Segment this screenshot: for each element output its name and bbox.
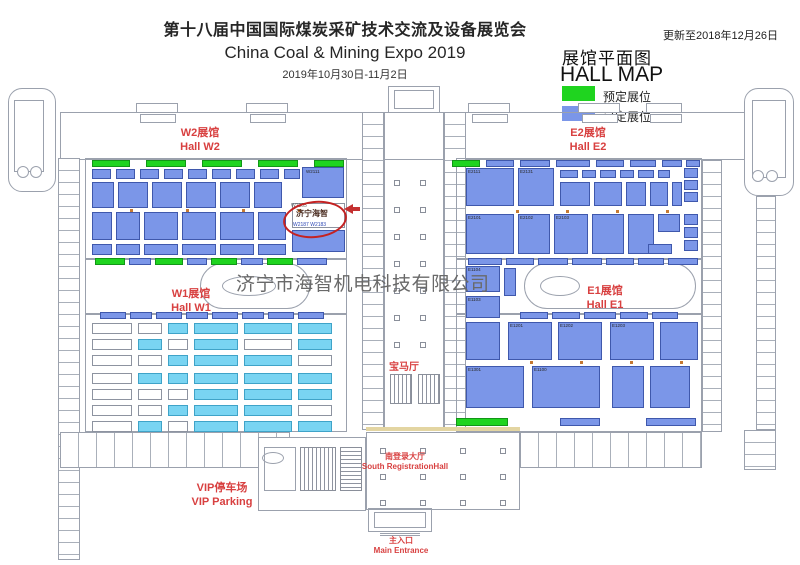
booth	[182, 244, 216, 255]
booth	[518, 168, 554, 206]
booth	[138, 323, 162, 334]
booth	[612, 366, 644, 408]
booth	[297, 258, 327, 265]
booth	[100, 312, 126, 319]
booth	[146, 160, 186, 167]
structural-column	[394, 315, 400, 321]
booth	[466, 366, 524, 408]
booth	[686, 160, 700, 167]
pillar-dot	[186, 209, 189, 212]
booth	[658, 214, 680, 232]
booth	[244, 323, 292, 334]
booth	[504, 268, 516, 296]
booth	[538, 258, 568, 265]
booth	[684, 180, 698, 190]
booth	[650, 366, 690, 408]
booth	[620, 312, 648, 319]
booth	[144, 212, 178, 240]
booth	[556, 160, 590, 167]
booth	[236, 169, 255, 179]
booth	[638, 258, 664, 265]
booth	[244, 421, 292, 432]
booth	[194, 389, 238, 400]
booth	[116, 212, 140, 240]
pillar-dot	[580, 361, 583, 364]
booth	[620, 170, 634, 178]
hall-w2-label: W2展馆 Hall W2	[164, 126, 236, 155]
booth	[129, 258, 151, 265]
structural-column	[420, 234, 426, 240]
booth	[684, 214, 698, 225]
structural-column	[500, 474, 506, 480]
booth	[187, 258, 207, 265]
booth	[194, 421, 238, 432]
booth	[298, 373, 332, 384]
structural-column	[420, 500, 426, 506]
booth	[168, 355, 188, 366]
booth	[144, 244, 178, 255]
pillar-dot	[242, 209, 245, 212]
booth	[186, 182, 216, 208]
booth	[188, 169, 207, 179]
booth	[95, 258, 125, 265]
booth	[155, 258, 183, 265]
booth	[241, 258, 263, 265]
booth	[168, 405, 188, 416]
booth	[116, 169, 135, 179]
pillar-dot	[530, 361, 533, 364]
booth	[560, 418, 600, 426]
structural-column	[394, 234, 400, 240]
booth	[92, 160, 130, 167]
booth	[560, 182, 590, 206]
booth	[572, 258, 602, 265]
booth	[684, 168, 698, 178]
booth	[684, 240, 698, 251]
booth	[138, 389, 162, 400]
booth	[244, 355, 292, 366]
pillar-dot	[666, 210, 669, 213]
booth	[152, 182, 182, 208]
booth	[298, 323, 332, 334]
booth	[116, 244, 140, 255]
south-registration-hall-label: 南登录大厅 South RegistrationHall	[340, 452, 470, 472]
booth	[130, 312, 152, 319]
booth	[298, 405, 332, 416]
structural-column	[394, 207, 400, 213]
company-watermark: 济宁市海智机电科技有限公司	[236, 269, 490, 296]
booth	[298, 389, 332, 400]
booth	[558, 322, 602, 360]
booth	[466, 322, 500, 360]
booth	[594, 182, 622, 206]
booth	[560, 170, 578, 178]
booth	[668, 258, 698, 265]
booth	[92, 421, 132, 432]
booth	[600, 170, 616, 178]
booth	[592, 214, 624, 254]
booth	[684, 227, 698, 238]
pillar-dot	[516, 210, 519, 213]
booth	[650, 182, 668, 206]
pillar-dot	[130, 209, 133, 212]
booth	[194, 339, 238, 350]
booth	[596, 160, 624, 167]
booth	[92, 323, 132, 334]
booth	[220, 212, 254, 240]
structural-column	[420, 261, 426, 267]
booth	[168, 421, 188, 432]
vip-parking-label: VIP停车场 VIP Parking	[170, 481, 274, 510]
booth	[672, 182, 682, 206]
pillar-dot	[630, 361, 633, 364]
booth	[648, 244, 672, 254]
booth	[138, 405, 162, 416]
structural-column	[420, 474, 426, 480]
booth	[168, 323, 188, 334]
booth	[284, 169, 300, 179]
hall-e2-label: E2展馆 Hall E2	[552, 126, 624, 155]
booth	[508, 322, 552, 360]
booth	[194, 355, 238, 366]
booth	[92, 339, 132, 350]
booth	[314, 160, 344, 167]
booth	[267, 258, 293, 265]
booth	[138, 421, 162, 432]
booth	[244, 389, 292, 400]
booth	[582, 170, 596, 178]
booth	[138, 339, 162, 350]
main-entrance-label: 主入口 Main Entrance	[358, 536, 444, 556]
booth	[684, 192, 698, 202]
structural-column	[420, 207, 426, 213]
structural-column	[380, 474, 386, 480]
pillar-dot	[616, 210, 619, 213]
booth	[466, 168, 514, 206]
structural-column	[394, 261, 400, 267]
booth	[486, 160, 514, 167]
booth	[452, 160, 480, 167]
booth	[520, 160, 550, 167]
booth	[92, 389, 132, 400]
hall-w1-label: W1展馆 Hall W1	[155, 287, 227, 316]
booth	[456, 418, 508, 426]
booth	[140, 169, 159, 179]
bmw-hall-label: 宝马厅	[352, 362, 456, 375]
structural-column	[460, 500, 466, 506]
booth	[466, 214, 514, 254]
structural-column	[420, 315, 426, 321]
booth	[194, 323, 238, 334]
booth	[242, 312, 264, 319]
structural-column	[420, 342, 426, 348]
structural-column	[460, 474, 466, 480]
booth	[92, 212, 112, 240]
booth	[506, 258, 534, 265]
structural-column	[394, 180, 400, 186]
booth	[92, 244, 112, 255]
booth	[202, 160, 242, 167]
booth	[92, 355, 132, 366]
booth	[638, 170, 654, 178]
booth	[584, 312, 616, 319]
booth	[518, 214, 550, 254]
booth	[552, 312, 580, 319]
booth	[302, 167, 344, 198]
booth	[182, 212, 216, 240]
booth	[244, 339, 292, 350]
highlight-arrow-icon-tail	[352, 207, 360, 211]
structural-column	[380, 500, 386, 506]
pillar-dot	[680, 361, 683, 364]
booth	[220, 182, 250, 208]
hall-e1-label: E1展馆 Hall E1	[569, 284, 641, 313]
structural-column	[420, 180, 426, 186]
booth	[662, 160, 682, 167]
booth	[194, 405, 238, 416]
booth	[554, 214, 588, 254]
booth	[168, 389, 188, 400]
booth	[138, 355, 162, 366]
booth	[298, 312, 324, 319]
booth	[606, 258, 634, 265]
booth	[466, 296, 500, 318]
pillar-dot	[566, 210, 569, 213]
booth	[168, 373, 188, 384]
booth	[211, 258, 237, 265]
booth	[658, 170, 670, 178]
booth	[520, 312, 548, 319]
booth	[660, 322, 698, 360]
booth	[92, 182, 114, 208]
booth	[630, 160, 656, 167]
booth	[92, 169, 111, 179]
booth	[220, 244, 254, 255]
booth	[646, 418, 696, 426]
booth	[258, 160, 298, 167]
booth	[168, 339, 188, 350]
booth	[652, 312, 678, 319]
booth	[92, 373, 132, 384]
booth	[258, 212, 286, 240]
booth	[244, 373, 292, 384]
booth	[118, 182, 148, 208]
structural-column	[500, 500, 506, 506]
structural-column	[500, 448, 506, 454]
hall-map-page: 第十八届中国国际煤炭采矿技术交流及设备展览会 China Coal & Mini…	[0, 0, 800, 565]
booth	[298, 339, 332, 350]
booth	[532, 366, 600, 408]
booth	[244, 405, 292, 416]
booth	[610, 322, 654, 360]
booth	[194, 373, 238, 384]
booth	[298, 355, 332, 366]
booth	[164, 169, 183, 179]
booth	[212, 169, 231, 179]
booth	[468, 258, 502, 265]
booth	[254, 182, 282, 208]
floor-plan: W2111E2111E2131E2101E2102E2103E1104E1103…	[0, 0, 800, 565]
booth	[138, 373, 162, 384]
booth	[92, 405, 132, 416]
booth	[626, 182, 646, 206]
booth	[298, 421, 332, 432]
booth	[260, 169, 279, 179]
booth	[258, 244, 286, 255]
structural-column	[394, 342, 400, 348]
booth	[268, 312, 294, 319]
